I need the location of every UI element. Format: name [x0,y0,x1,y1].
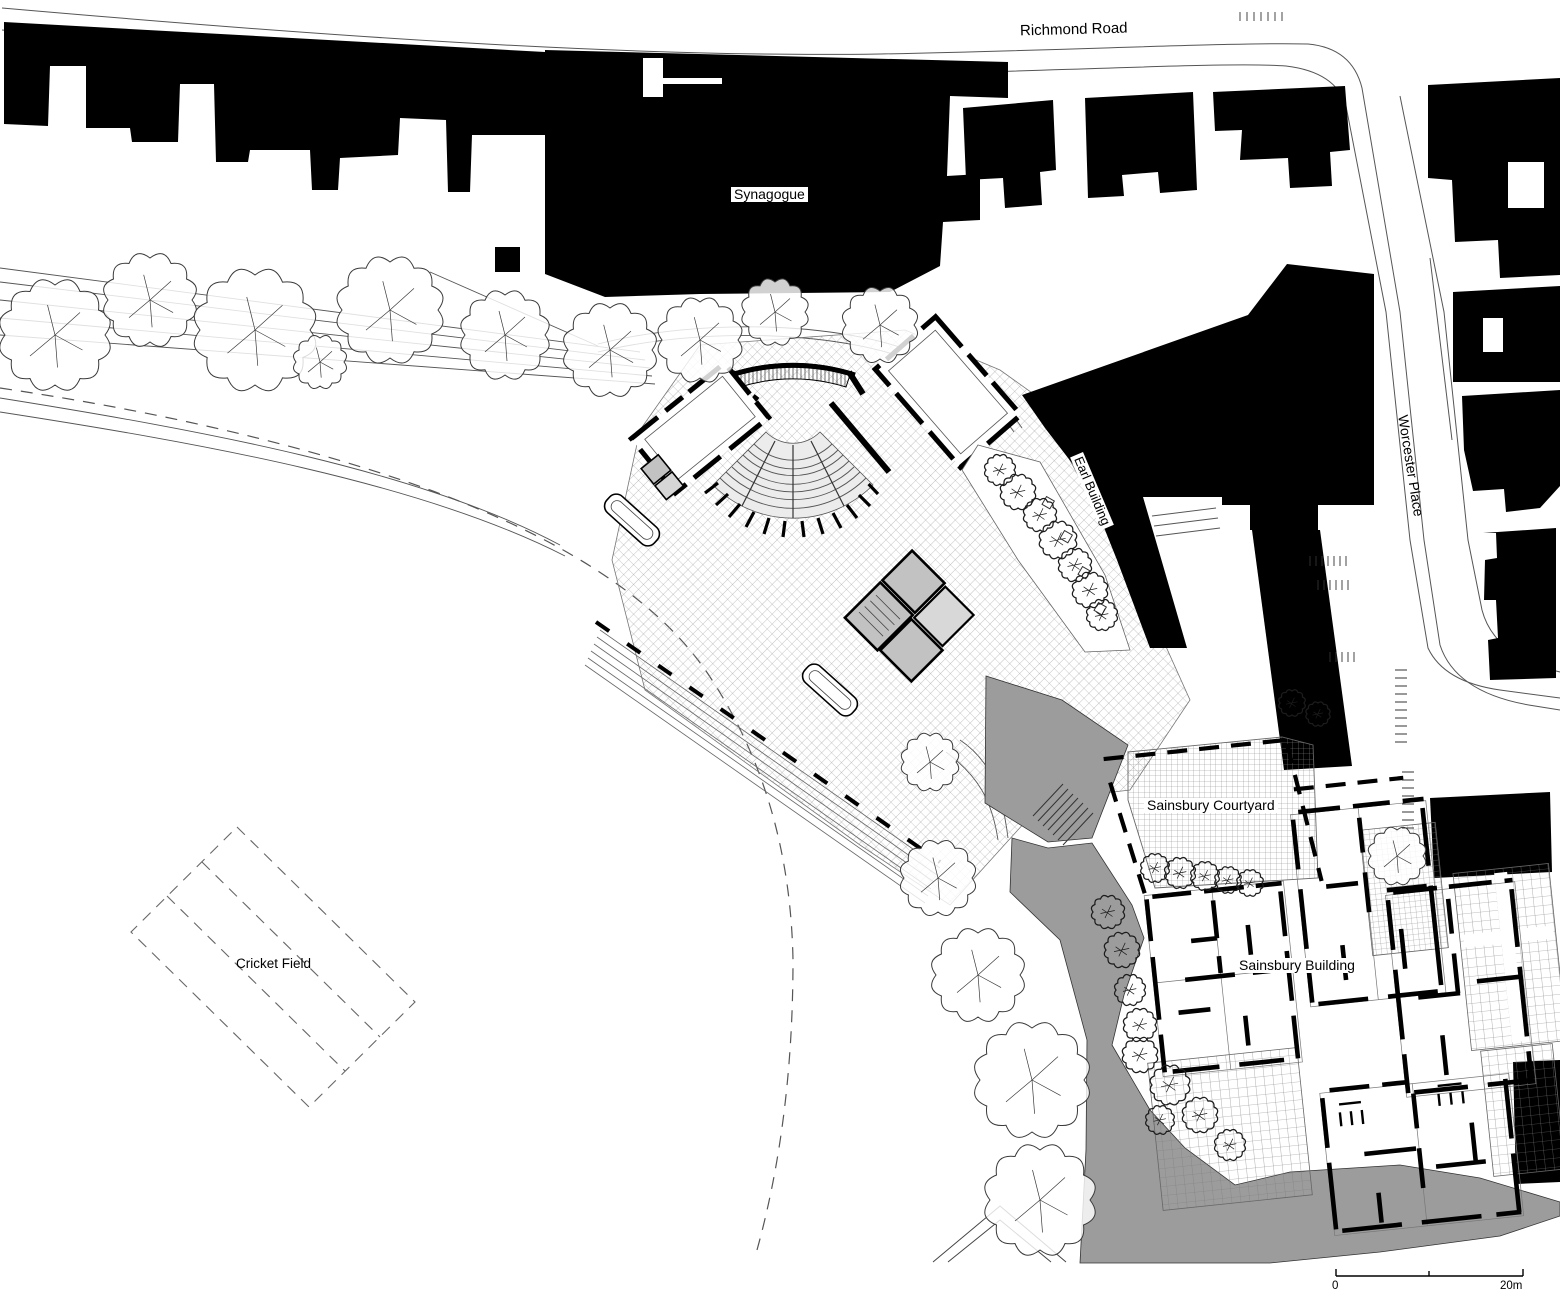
outbuilding [495,247,520,272]
earl-building-arm [1252,530,1352,770]
sainsbury-courtyard-label: Sainsbury Courtyard [1144,798,1278,813]
house-block [1085,92,1197,198]
scale-zero-label: 0 [1332,1280,1338,1292]
east-block-a [1453,286,1560,382]
house-block [1213,86,1350,188]
sainsbury-building-label: Sainsbury Building [1236,958,1358,973]
paper-margin [0,1266,1560,1297]
synagogue-label: Synagogue [731,187,808,202]
scale-end-label: 20m [1500,1280,1522,1292]
synagogue-building [545,50,1008,297]
terrace-row-west [4,22,545,192]
east-block-b [1462,390,1560,512]
east-block-c [1483,528,1556,680]
richmond-road-label: Richmond Road [1020,21,1128,40]
earl-courtyard-steps [1152,508,1220,536]
cricket-field-label: Cricket Field [236,957,311,971]
site-plan: Richmond Road Synagogue Earl Building Wo… [0,0,1560,1297]
